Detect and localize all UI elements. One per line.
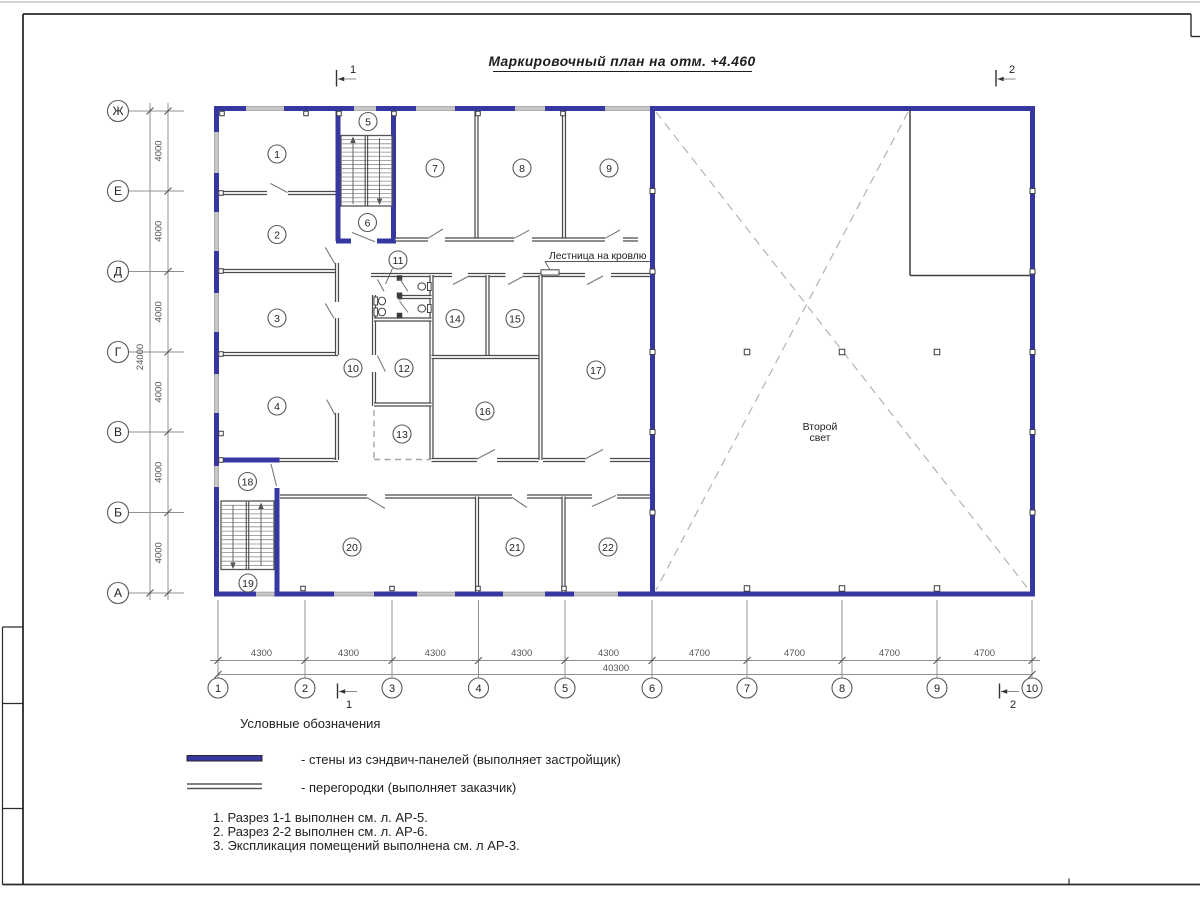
svg-text:1: 1 (215, 683, 221, 695)
svg-text:4300: 4300 (425, 648, 446, 659)
svg-text:4000: 4000 (154, 301, 165, 322)
svg-text:А: А (114, 586, 122, 600)
svg-text:Ж: Ж (112, 104, 123, 118)
svg-text:12: 12 (398, 363, 410, 375)
svg-text:4300: 4300 (598, 648, 619, 659)
svg-text:1: 1 (350, 64, 356, 76)
svg-text:4700: 4700 (689, 648, 710, 659)
svg-text:16: 16 (479, 406, 491, 418)
svg-text:40300: 40300 (603, 663, 629, 674)
svg-text:- перегородки (выполняет заказ: - перегородки (выполняет заказчик) (301, 780, 516, 795)
svg-text:14: 14 (449, 313, 461, 325)
svg-text:11: 11 (393, 255, 404, 267)
svg-text:3: 3 (389, 683, 395, 695)
svg-text:4700: 4700 (879, 648, 900, 659)
svg-text:21: 21 (509, 542, 521, 554)
svg-text:Б: Б (114, 506, 122, 520)
svg-text:1: 1 (274, 149, 280, 161)
svg-text:18: 18 (242, 476, 254, 488)
svg-text:1. Разрез 1-1 выполнен см. л.: 1. Разрез 1-1 выполнен см. л. АР-5. (213, 810, 428, 825)
svg-text:4700: 4700 (974, 648, 995, 659)
svg-text:15: 15 (509, 313, 521, 325)
svg-text:8: 8 (519, 163, 525, 175)
svg-text:20: 20 (346, 542, 358, 554)
svg-text:17: 17 (590, 365, 602, 377)
svg-text:Условные обозначения: Условные обозначения (240, 716, 380, 731)
svg-text:4: 4 (274, 401, 280, 413)
svg-text:7: 7 (432, 163, 438, 175)
svg-text:2. Разрез 2-2 выполнен см. л.: 2. Разрез 2-2 выполнен см. л. АР-6. (213, 824, 428, 839)
svg-text:24000: 24000 (135, 344, 146, 370)
svg-text:4000: 4000 (154, 462, 165, 483)
svg-text:4700: 4700 (784, 648, 805, 659)
svg-text:10: 10 (1026, 683, 1038, 695)
svg-text:3. Экспликация помещений выпол: 3. Экспликация помещений выполнена см. л… (213, 838, 520, 853)
svg-text:5: 5 (562, 683, 568, 695)
svg-text:- стены из сэндвич-панелей (вы: - стены из сэндвич-панелей (выполняет за… (301, 752, 621, 767)
svg-text:22: 22 (602, 542, 614, 554)
svg-text:2: 2 (274, 229, 280, 241)
svg-text:Е: Е (114, 184, 122, 198)
svg-text:9: 9 (934, 683, 940, 695)
svg-text:2: 2 (1009, 64, 1015, 76)
svg-text:Д: Д (114, 265, 122, 279)
svg-text:4000: 4000 (154, 381, 165, 402)
svg-text:5: 5 (365, 116, 371, 128)
svg-text:4000: 4000 (154, 140, 165, 161)
svg-text:6: 6 (365, 217, 371, 229)
svg-text:Маркировочный план на отм. +4.: Маркировочный план на отм. +4.460 (488, 54, 755, 69)
svg-text:13: 13 (396, 429, 408, 441)
svg-text:4000: 4000 (154, 542, 165, 563)
svg-text:10: 10 (347, 363, 359, 375)
svg-text:4300: 4300 (338, 648, 359, 659)
svg-text:свет: свет (809, 432, 830, 444)
svg-text:19: 19 (242, 578, 254, 590)
svg-text:8: 8 (839, 683, 845, 695)
svg-text:2: 2 (302, 683, 308, 695)
svg-text:7: 7 (744, 683, 750, 695)
svg-text:4300: 4300 (511, 648, 532, 659)
svg-text:4: 4 (475, 683, 481, 695)
svg-text:Г: Г (115, 345, 122, 359)
svg-text:4300: 4300 (251, 648, 272, 659)
svg-text:Лестница на кровлю: Лестница на кровлю (549, 251, 647, 262)
svg-text:1: 1 (346, 699, 352, 711)
svg-text:3: 3 (274, 313, 280, 325)
svg-text:В: В (114, 425, 122, 439)
svg-text:2: 2 (1010, 699, 1016, 711)
svg-text:9: 9 (606, 163, 612, 175)
svg-text:4000: 4000 (154, 221, 165, 242)
svg-text:6: 6 (649, 683, 655, 695)
